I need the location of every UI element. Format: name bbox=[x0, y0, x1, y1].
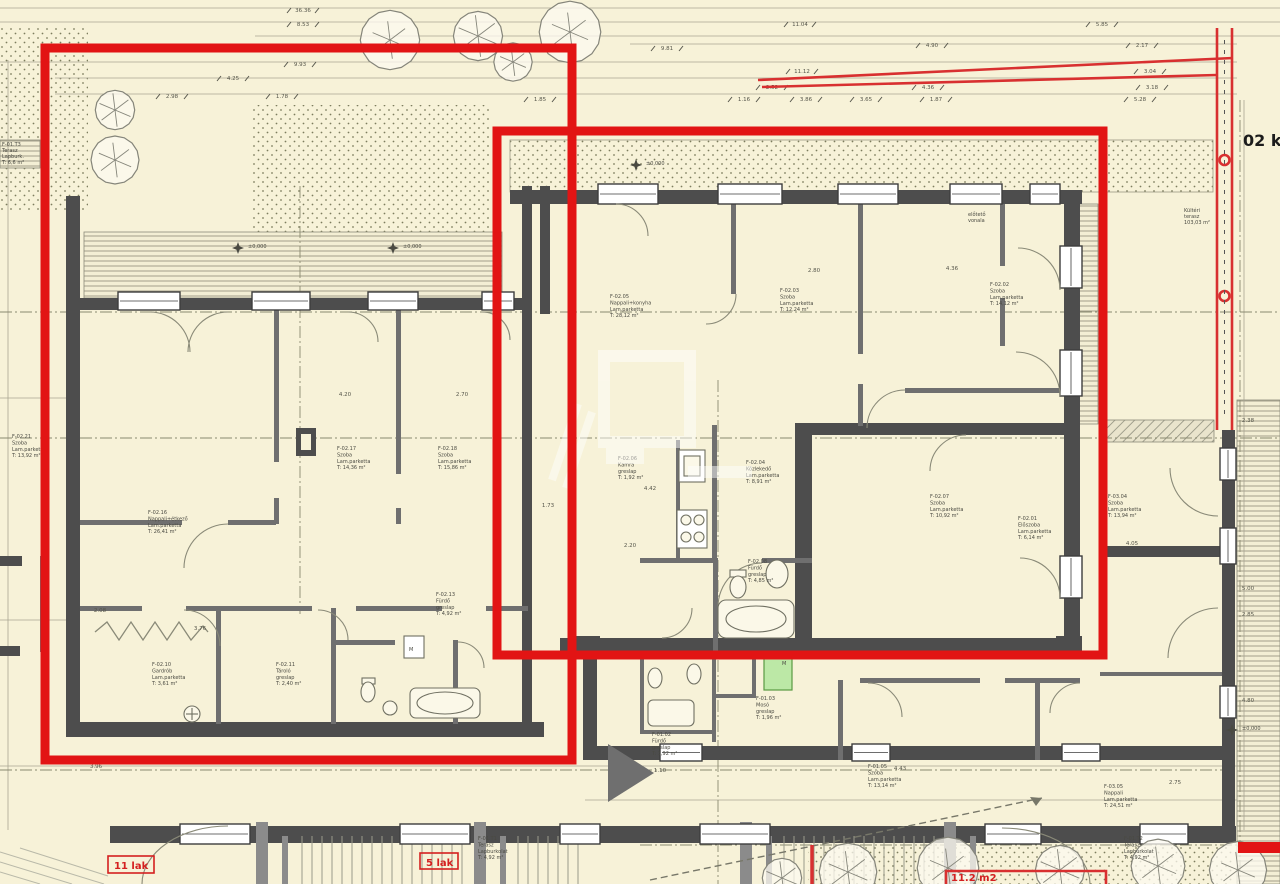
svg-text:2.98: 2.98 bbox=[166, 94, 179, 100]
red-edge-bar bbox=[1238, 842, 1280, 853]
svg-text:F-01.03: F-01.03 bbox=[756, 696, 775, 702]
svg-text:Szoba: Szoba bbox=[780, 294, 795, 300]
svg-text:4.80: 4.80 bbox=[1242, 698, 1255, 704]
svg-text:3.04: 3.04 bbox=[1144, 69, 1157, 75]
svg-text:Előszoba: Előszoba bbox=[1018, 522, 1040, 528]
svg-text:Nappali: Nappali bbox=[1104, 790, 1123, 796]
svg-text:4.90: 4.90 bbox=[926, 43, 939, 49]
svg-text:3.96: 3.96 bbox=[90, 764, 103, 770]
svg-text:T: 2,40 m²: T: 2,40 m² bbox=[275, 681, 301, 687]
svg-text:2.70: 2.70 bbox=[456, 392, 469, 398]
svg-text:Lam.parketta: Lam.parketta bbox=[148, 523, 181, 529]
svg-text:4.36: 4.36 bbox=[922, 85, 935, 91]
svg-text:Lapburkolat: Lapburkolat bbox=[478, 849, 508, 855]
svg-text:3.65: 3.65 bbox=[860, 97, 873, 103]
svg-text:T: 13,92 m²: T: 13,92 m² bbox=[11, 453, 41, 459]
svg-text:greslap: greslap bbox=[436, 605, 454, 611]
svg-text:Terasz: Terasz bbox=[477, 842, 494, 848]
washing-machine-mark: M bbox=[409, 647, 413, 653]
svg-text:F-02.11: F-02.11 bbox=[276, 662, 295, 668]
svg-text:5 lak: 5 lak bbox=[426, 858, 454, 869]
svg-text:F-02.04: F-02.04 bbox=[746, 460, 765, 466]
svg-text:4.36: 4.36 bbox=[946, 266, 959, 272]
svg-text:Tároló: Tároló bbox=[275, 667, 291, 674]
svg-text:F-02.16: F-02.16 bbox=[148, 510, 167, 516]
svg-text:9.81: 9.81 bbox=[661, 46, 673, 52]
svg-text:4.25: 4.25 bbox=[227, 76, 240, 82]
svg-text:Lam.parketta: Lam.parketta bbox=[930, 507, 963, 513]
svg-text:F-01.T2: F-01.T2 bbox=[1124, 836, 1143, 842]
svg-text:Kültéri: Kültéri bbox=[1184, 207, 1200, 214]
svg-text:Mosó: Mosó bbox=[756, 701, 769, 708]
svg-text:1.87: 1.87 bbox=[930, 97, 943, 103]
svg-text:F-03.05: F-03.05 bbox=[1104, 784, 1123, 790]
svg-text:T: 28,12 m²: T: 28,12 m² bbox=[609, 313, 639, 319]
svg-text:11.12: 11.12 bbox=[794, 69, 810, 75]
svg-text:T: 1,96 m²: T: 1,96 m² bbox=[755, 715, 781, 721]
svg-text:4.42: 4.42 bbox=[644, 486, 656, 492]
svg-text:F-02.07: F-02.07 bbox=[930, 494, 949, 500]
svg-text:3.86: 3.86 bbox=[800, 97, 813, 103]
svg-text:T: 4,92 m²: T: 4,92 m² bbox=[1123, 855, 1149, 861]
svg-text:F-02.21: F-02.21 bbox=[12, 434, 31, 440]
svg-text:T: 4,92 m²: T: 4,92 m² bbox=[477, 855, 503, 861]
svg-text:Szoba: Szoba bbox=[12, 440, 27, 446]
svg-text:±0,000: ±0,000 bbox=[248, 244, 267, 250]
svg-text:F-03.04: F-03.04 bbox=[1108, 494, 1127, 500]
svg-text:1.85: 1.85 bbox=[534, 97, 547, 103]
svg-text:5.85: 5.85 bbox=[1096, 22, 1109, 28]
svg-text:greslap: greslap bbox=[618, 469, 636, 475]
svg-text:F-02.05: F-02.05 bbox=[610, 294, 629, 300]
svg-text:5.00: 5.00 bbox=[1242, 586, 1255, 592]
svg-text:Szoba: Szoba bbox=[868, 770, 883, 776]
svg-text:2.38: 2.38 bbox=[1242, 418, 1255, 424]
svg-text:4.43: 4.43 bbox=[894, 766, 907, 772]
svg-text:Fürdő: Fürdő bbox=[748, 565, 762, 571]
svg-text:Szoba: Szoba bbox=[1108, 500, 1123, 506]
svg-text:Lam.parketta: Lam.parketta bbox=[12, 447, 45, 453]
svg-text:T: 14,36 m²: T: 14,36 m² bbox=[336, 465, 366, 471]
svg-text:T: 4,85 m²: T: 4,85 m² bbox=[747, 578, 773, 584]
svg-text:F-02.18: F-02.18 bbox=[438, 446, 457, 452]
svg-text:T: 26,41 m²: T: 26,41 m² bbox=[147, 529, 177, 535]
svg-text:36.36: 36.36 bbox=[295, 8, 311, 14]
svg-text:T: 6,6 m²: T: 6,6 m² bbox=[1, 160, 24, 166]
svg-text:T: 3,61 m²: T: 3,61 m² bbox=[151, 681, 177, 687]
svg-text:Lam.parketta: Lam.parketta bbox=[337, 459, 370, 465]
svg-text:T: 12,24 m²: T: 12,24 m² bbox=[779, 307, 809, 313]
svg-text:1.73: 1.73 bbox=[542, 503, 555, 509]
svg-text:Lam.parketta: Lam.parketta bbox=[610, 307, 643, 313]
svg-text:F-01.05: F-01.05 bbox=[868, 764, 887, 770]
svg-text:Szoba: Szoba bbox=[990, 288, 1005, 294]
svg-text:Lam.parketta: Lam.parketta bbox=[1018, 529, 1051, 535]
svg-text:F-02.10: F-02.10 bbox=[152, 662, 171, 668]
svg-text:Fürdő: Fürdő bbox=[652, 738, 666, 744]
svg-text:Lam.parketta: Lam.parketta bbox=[1108, 507, 1141, 513]
svg-text:T: 24,51 m²: T: 24,51 m² bbox=[1103, 803, 1133, 809]
svg-text:±0,000: ±0,000 bbox=[1242, 726, 1261, 732]
svg-text:Lam.parketta: Lam.parketta bbox=[868, 777, 901, 783]
corner-note: 02 ke bbox=[1243, 131, 1280, 150]
svg-text:2.20: 2.20 bbox=[624, 543, 637, 549]
svg-text:Lam.parketta: Lam.parketta bbox=[1104, 797, 1137, 803]
svg-text:2.17: 2.17 bbox=[1136, 43, 1149, 49]
svg-text:M: M bbox=[782, 661, 786, 667]
svg-text:103,03 m²: 103,03 m² bbox=[1184, 220, 1210, 226]
svg-text:2.80: 2.80 bbox=[808, 268, 821, 274]
svg-text:Gardrób: Gardrób bbox=[152, 667, 172, 674]
svg-text:±0,000: ±0,000 bbox=[646, 161, 665, 167]
svg-text:4.20: 4.20 bbox=[339, 392, 352, 398]
svg-text:T: 13,14 m²: T: 13,14 m² bbox=[867, 783, 897, 789]
area-label: 11.2 m2 bbox=[951, 873, 997, 884]
svg-text:2.75: 2.75 bbox=[1169, 780, 1182, 786]
pillar-core bbox=[301, 434, 311, 450]
svg-text:F-01.T1: F-01.T1 bbox=[478, 836, 497, 842]
svg-text:9.93: 9.93 bbox=[294, 62, 307, 68]
svg-text:5.28: 5.28 bbox=[1134, 97, 1147, 103]
svg-text:T: 3,92 m²: T: 3,92 m² bbox=[651, 751, 677, 757]
svg-text:Szoba: Szoba bbox=[438, 452, 453, 458]
svg-text:F-02.13: F-02.13 bbox=[436, 592, 455, 598]
green-room: M bbox=[764, 656, 792, 690]
svg-text:2.08: 2.08 bbox=[94, 608, 107, 614]
svg-text:Lam.parketta: Lam.parketta bbox=[780, 301, 813, 307]
svg-text:1.10: 1.10 bbox=[654, 768, 667, 774]
svg-text:Fürdő: Fürdő bbox=[436, 598, 450, 604]
svg-text:1.78: 1.78 bbox=[276, 94, 289, 100]
svg-text:F-02.01: F-02.01 bbox=[1018, 516, 1037, 522]
svg-text:T: 8,91 m²: T: 8,91 m² bbox=[745, 479, 771, 485]
svg-text:Nappali+étkező: Nappali+étkező bbox=[148, 515, 188, 522]
svg-text:greslap: greslap bbox=[748, 572, 766, 578]
svg-text:Lam.parketta: Lam.parketta bbox=[990, 295, 1023, 301]
svg-text:T: 10,92 m²: T: 10,92 m² bbox=[929, 513, 959, 519]
floorplan-page: M M 36.368.5311.045.859.939.814.902.1711… bbox=[0, 0, 1280, 884]
svg-text:Lam.parketta: Lam.parketta bbox=[152, 675, 185, 681]
svg-text:F-02.08: F-02.08 bbox=[748, 559, 767, 565]
svg-text:Lapburkolat: Lapburkolat bbox=[1124, 849, 1154, 855]
svg-text:3.18: 3.18 bbox=[1146, 85, 1159, 91]
svg-text:vonala: vonala bbox=[968, 218, 985, 224]
svg-text:Lam.parketta: Lam.parketta bbox=[438, 459, 471, 465]
svg-text:F-02.17: F-02.17 bbox=[337, 446, 356, 452]
svg-text:Terasz: Terasz bbox=[1123, 842, 1140, 848]
svg-text:greslap: greslap bbox=[756, 709, 774, 715]
svg-text:2.85: 2.85 bbox=[1242, 612, 1255, 618]
svg-text:F-02.03: F-02.03 bbox=[780, 288, 799, 294]
svg-text:Szoba: Szoba bbox=[930, 500, 945, 506]
svg-text:T: 14,12 m²: T: 14,12 m² bbox=[989, 301, 1019, 307]
svg-text:1.16: 1.16 bbox=[738, 97, 751, 103]
svg-text:T: 4,92 m²: T: 4,92 m² bbox=[435, 611, 461, 617]
svg-text:greslap: greslap bbox=[276, 675, 294, 681]
svg-text:±0,000: ±0,000 bbox=[403, 244, 422, 250]
svg-text:11.04: 11.04 bbox=[792, 22, 808, 28]
svg-text:greslap: greslap bbox=[652, 745, 670, 751]
svg-text:F-01.02: F-01.02 bbox=[652, 732, 671, 738]
svg-text:4.05: 4.05 bbox=[1126, 541, 1139, 547]
svg-text:11 lak: 11 lak bbox=[114, 861, 149, 872]
svg-text:Szoba: Szoba bbox=[337, 452, 352, 458]
svg-text:T: 6,14 m²: T: 6,14 m² bbox=[1017, 535, 1043, 541]
svg-text:3.76: 3.76 bbox=[194, 626, 207, 632]
svg-text:F-02.02: F-02.02 bbox=[990, 282, 1009, 288]
svg-text:T: 15,86 m²: T: 15,86 m² bbox=[437, 465, 467, 471]
svg-text:8.53: 8.53 bbox=[297, 22, 310, 28]
svg-text:T: 13,94 m²: T: 13,94 m² bbox=[1107, 513, 1137, 519]
floorplan-canvas: M M 36.368.5311.045.859.939.814.902.1711… bbox=[0, 0, 1280, 884]
svg-text:Nappali+konyha: Nappali+konyha bbox=[610, 300, 651, 306]
svg-text:T: 1,92 m²: T: 1,92 m² bbox=[617, 475, 643, 481]
